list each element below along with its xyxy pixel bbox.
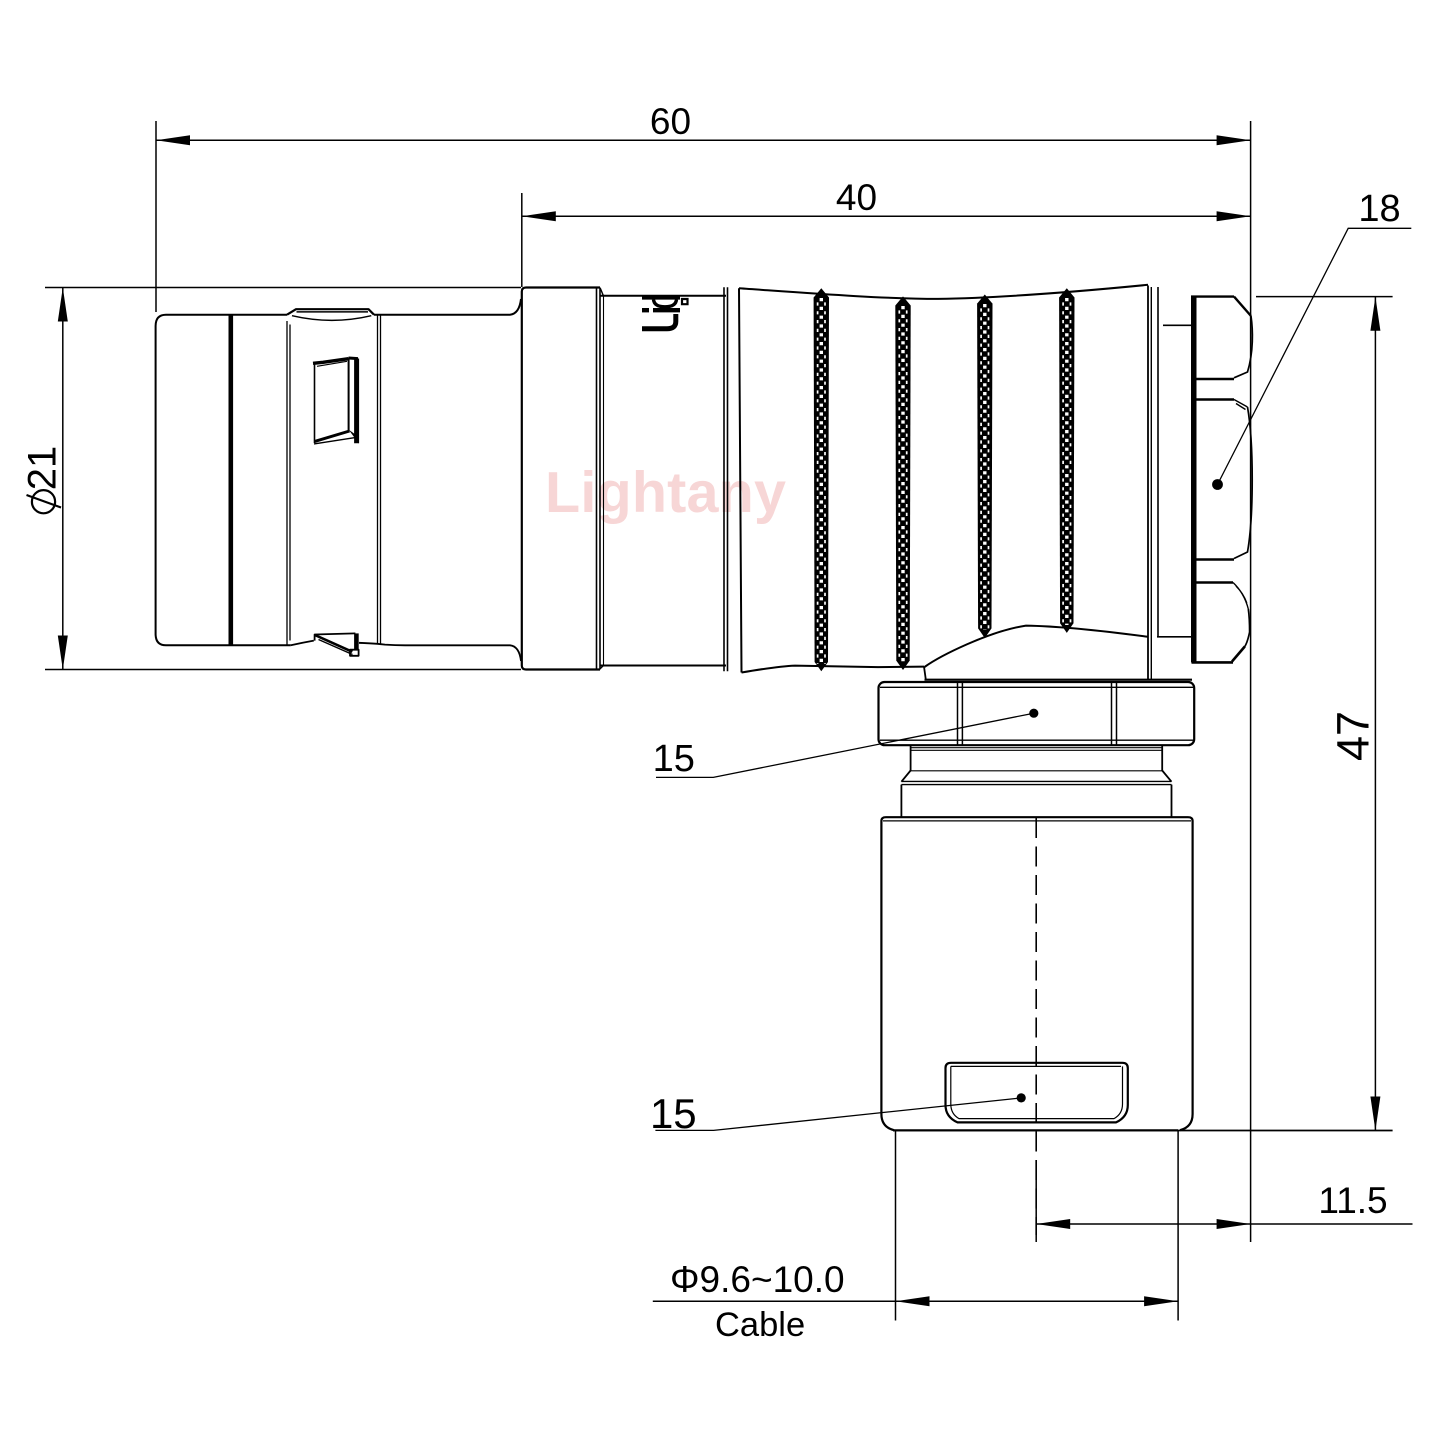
svg-text:47: 47 [1328,711,1379,761]
svg-text:60: 60 [650,101,691,142]
svg-text:15: 15 [653,738,695,780]
svg-text:18: 18 [1358,188,1400,230]
svg-text:11.5: 11.5 [1318,1180,1387,1221]
svg-text:15: 15 [650,1090,697,1137]
svg-text:Lightany: Lightany [545,461,786,525]
svg-text:Cable: Cable [715,1306,805,1344]
svg-text:Φ9.6~10.0: Φ9.6~10.0 [670,1259,845,1300]
svg-text:21: 21 [21,446,65,491]
svg-text:40: 40 [836,177,877,218]
